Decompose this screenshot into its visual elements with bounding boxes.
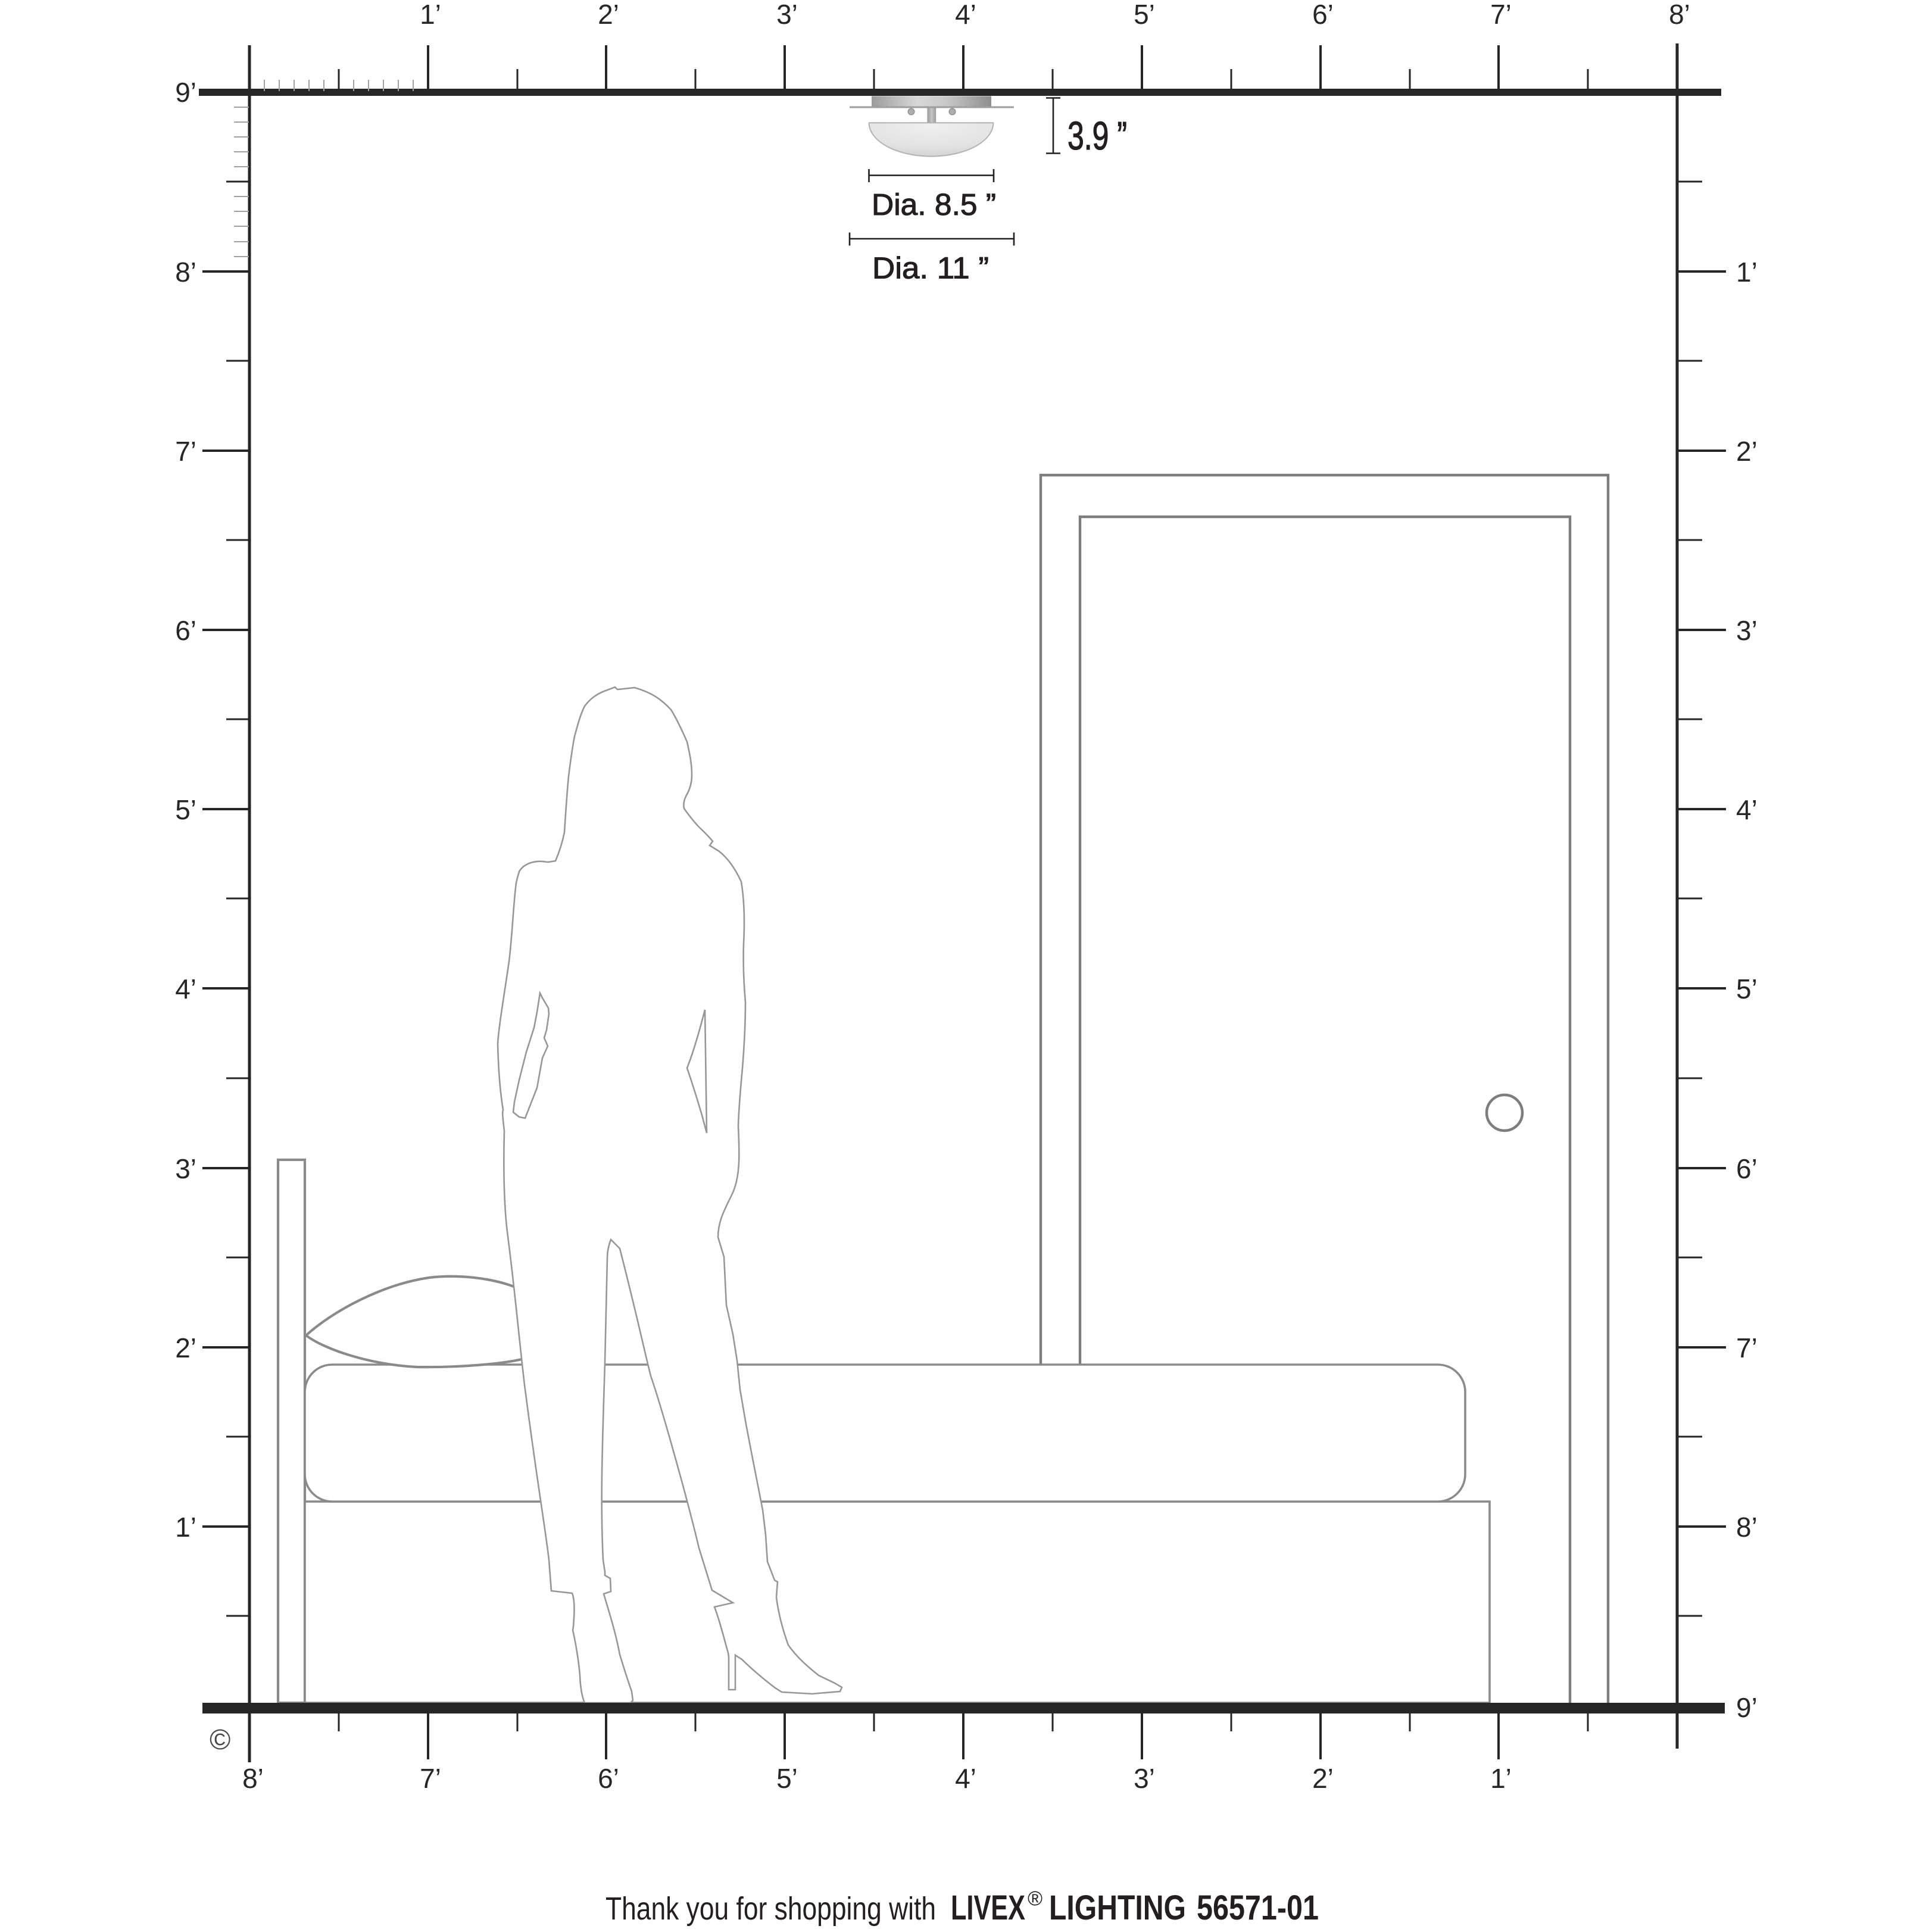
svg-text:8’: 8’: [175, 257, 196, 288]
svg-text:8’: 8’: [1669, 0, 1690, 30]
svg-text:Dia. 8.5 ”: Dia. 8.5 ”: [872, 188, 996, 221]
svg-text:2’: 2’: [598, 0, 619, 30]
svg-text:7’: 7’: [1490, 0, 1512, 30]
svg-text:6’: 6’: [1312, 0, 1334, 30]
svg-text:5’: 5’: [1736, 973, 1758, 1004]
svg-text:3’: 3’: [175, 1153, 196, 1184]
svg-text:1’: 1’: [420, 0, 441, 30]
svg-text:7’: 7’: [175, 436, 196, 467]
svg-text:2’: 2’: [175, 1332, 196, 1363]
svg-text:2’: 2’: [1736, 436, 1758, 467]
svg-text:6’: 6’: [1736, 1153, 1758, 1184]
svg-text:4’: 4’: [955, 0, 976, 30]
svg-text:LIGHTING: LIGHTING: [1049, 1889, 1186, 1927]
svg-text:56571-01: 56571-01: [1197, 1889, 1319, 1927]
svg-text:6’: 6’: [598, 1763, 619, 1794]
svg-text:7’: 7’: [420, 1763, 441, 1794]
svg-text:4’: 4’: [175, 973, 196, 1004]
svg-text:5’: 5’: [776, 1763, 798, 1794]
svg-text:LIVEX: LIVEX: [951, 1889, 1025, 1927]
svg-text:®: ®: [1028, 1887, 1042, 1910]
svg-text:5’: 5’: [175, 794, 196, 825]
svg-text:8’: 8’: [1736, 1512, 1758, 1543]
svg-text:3’: 3’: [1134, 1763, 1155, 1794]
svg-text:3.9 ”: 3.9 ”: [1067, 114, 1127, 158]
svg-text:4’: 4’: [1736, 794, 1758, 825]
svg-text:1’: 1’: [1490, 1763, 1512, 1794]
svg-text:3’: 3’: [1736, 615, 1758, 646]
svg-text:5’: 5’: [1134, 0, 1155, 30]
svg-text:9’: 9’: [1736, 1692, 1758, 1723]
svg-text:1’: 1’: [1736, 257, 1758, 288]
svg-text:3’: 3’: [776, 0, 798, 30]
svg-text:2’: 2’: [1312, 1763, 1334, 1794]
svg-text:7’: 7’: [1736, 1332, 1758, 1363]
svg-text:Dia. 11 ”: Dia. 11 ”: [872, 251, 989, 285]
svg-text:9’: 9’: [175, 77, 196, 108]
svg-text:6’: 6’: [175, 615, 196, 646]
svg-text:4’: 4’: [955, 1763, 976, 1794]
svg-text:8’: 8’: [242, 1763, 264, 1794]
svg-text:1’: 1’: [175, 1512, 196, 1543]
svg-text:©: ©: [210, 1724, 230, 1756]
svg-text:Thank you for shopping with: Thank you for shopping with: [605, 1891, 936, 1927]
